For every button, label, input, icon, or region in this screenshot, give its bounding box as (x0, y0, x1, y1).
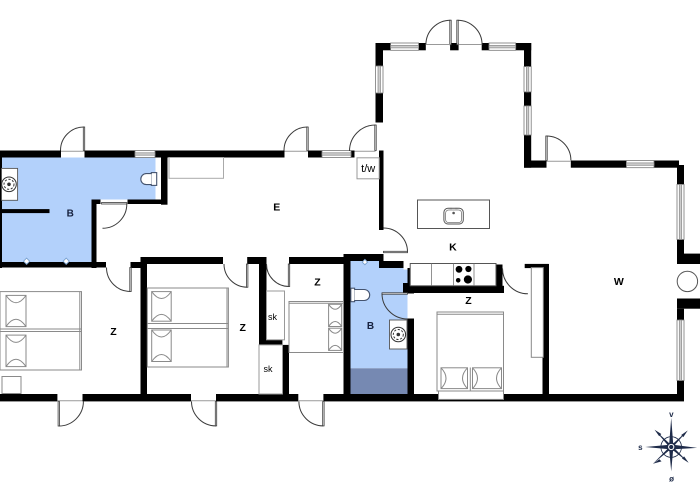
svg-text:B: B (67, 208, 74, 219)
svg-text:v: v (669, 410, 674, 419)
svg-text:Z: Z (110, 326, 117, 338)
svg-text:Z: Z (239, 322, 246, 334)
svg-text:W: W (614, 276, 624, 288)
svg-text:Z: Z (314, 277, 321, 289)
svg-text:K: K (449, 242, 457, 254)
svg-text:B: B (367, 321, 374, 332)
svg-text:t/w: t/w (361, 163, 375, 175)
svg-text:sk: sk (264, 364, 274, 374)
svg-text:Z: Z (465, 295, 472, 307)
svg-text:sk: sk (268, 312, 278, 322)
svg-text:ø: ø (669, 475, 674, 484)
svg-text:s: s (638, 443, 643, 452)
svg-text:E: E (273, 201, 280, 213)
